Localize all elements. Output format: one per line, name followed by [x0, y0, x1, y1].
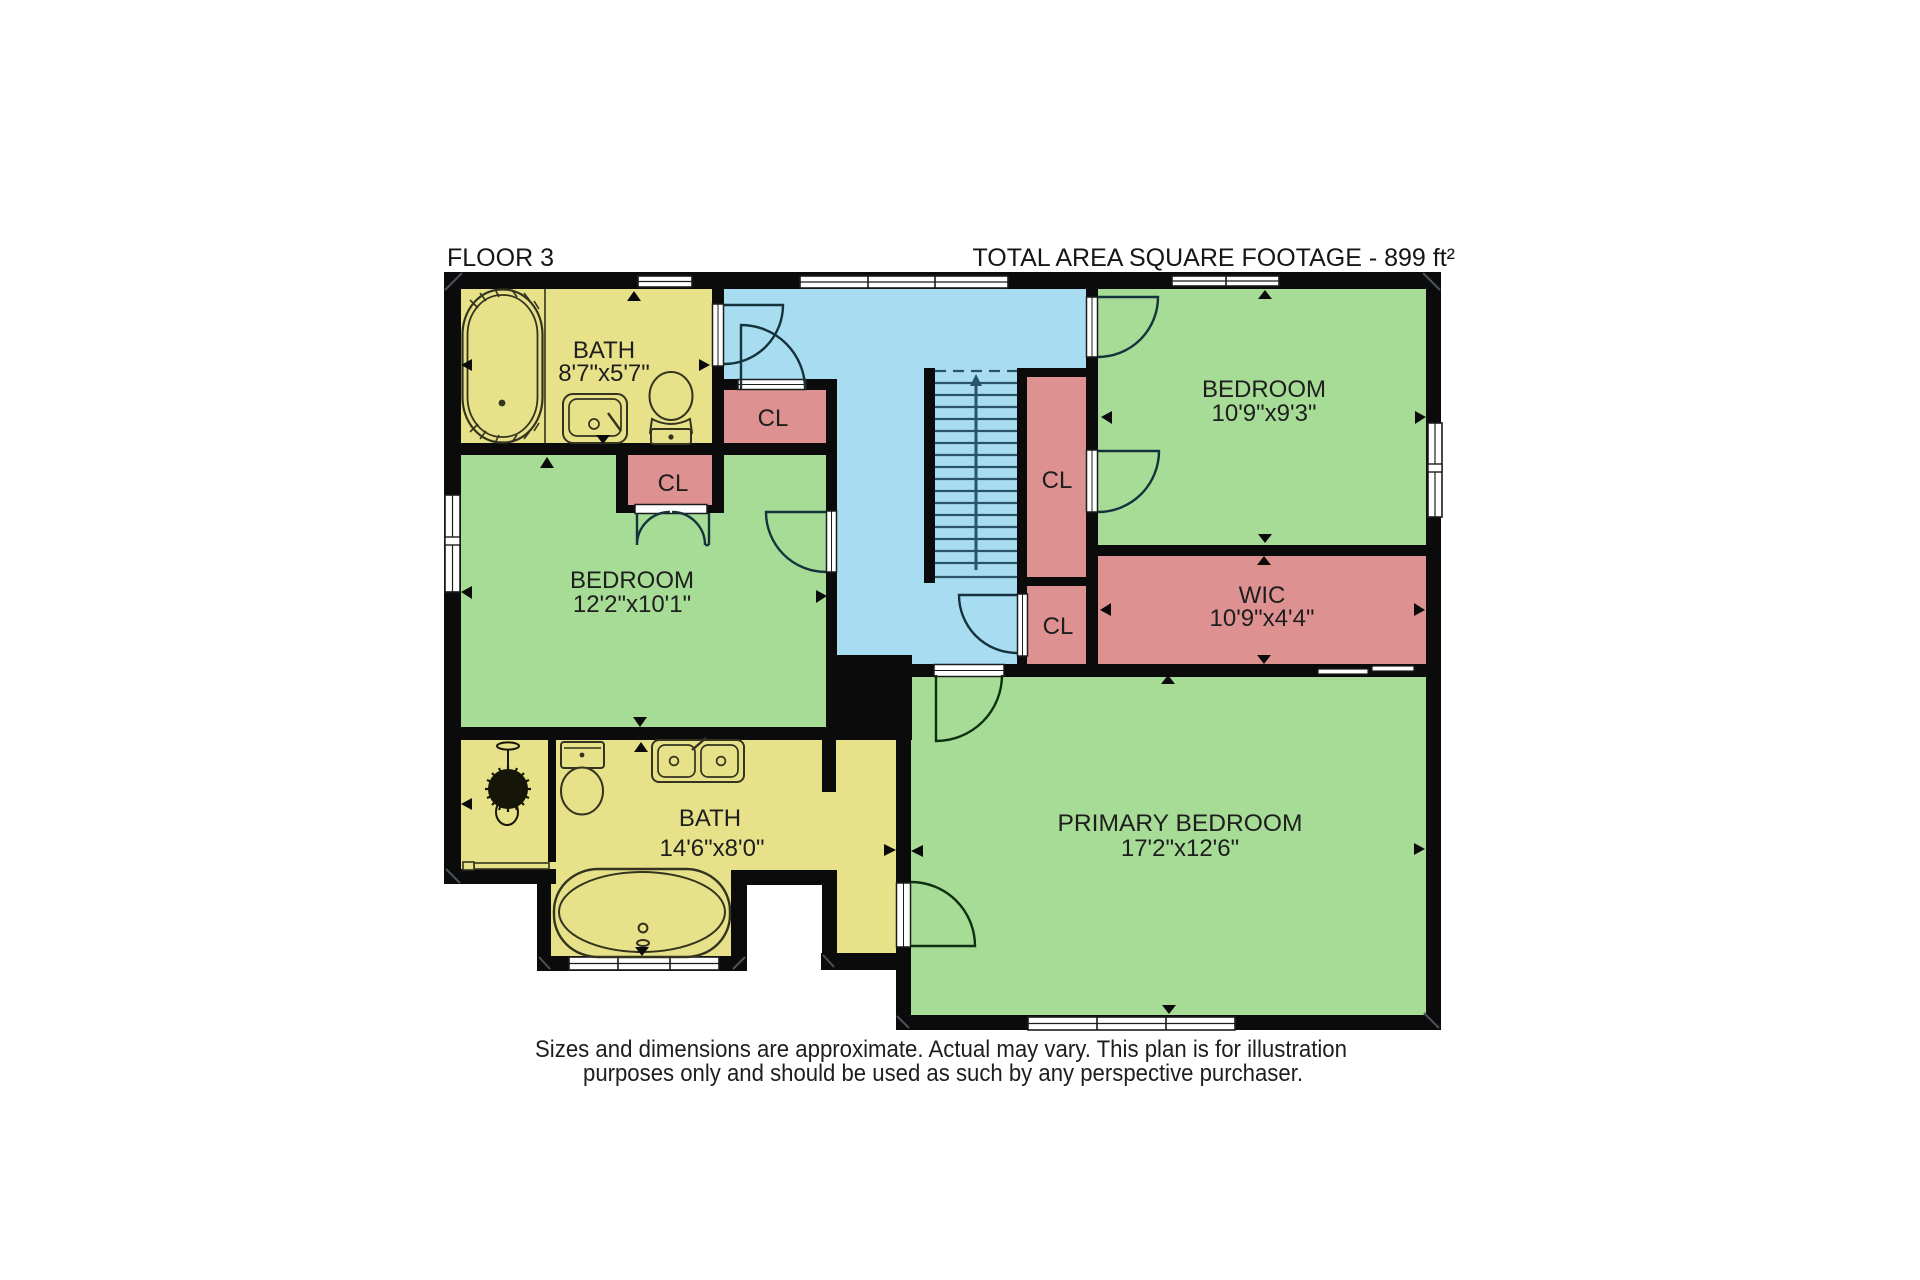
svg-text:FLOOR 3: FLOOR 3 — [447, 244, 554, 272]
svg-text:8'7"x5'7": 8'7"x5'7" — [558, 360, 650, 387]
svg-text:CL: CL — [658, 470, 689, 497]
svg-text:CL: CL — [1043, 613, 1074, 640]
svg-text:12'2"x10'1": 12'2"x10'1" — [573, 591, 691, 618]
svg-text:BEDROOM: BEDROOM — [570, 567, 694, 594]
svg-text:14'6"x8'0": 14'6"x8'0" — [660, 835, 765, 862]
svg-text:10'9"x9'3": 10'9"x9'3" — [1212, 400, 1317, 427]
svg-text:TOTAL AREA SQUARE FOOTAGE - 89: TOTAL AREA SQUARE FOOTAGE - 899 ft² — [972, 244, 1455, 272]
svg-text:Sizes and dimensions are appro: Sizes and dimensions are approximate. Ac… — [535, 1036, 1347, 1063]
svg-text:PRIMARY BEDROOM: PRIMARY BEDROOM — [1058, 810, 1303, 837]
svg-text:CL: CL — [758, 405, 789, 432]
svg-text:BATH: BATH — [679, 805, 741, 832]
svg-text:10'9"x4'4": 10'9"x4'4" — [1210, 605, 1315, 632]
svg-text:purposes only and should be us: purposes only and should be used as such… — [583, 1060, 1303, 1087]
svg-text:17'2"x12'6": 17'2"x12'6" — [1121, 835, 1239, 862]
svg-text:CL: CL — [1042, 467, 1073, 494]
svg-text:BEDROOM: BEDROOM — [1202, 376, 1326, 403]
